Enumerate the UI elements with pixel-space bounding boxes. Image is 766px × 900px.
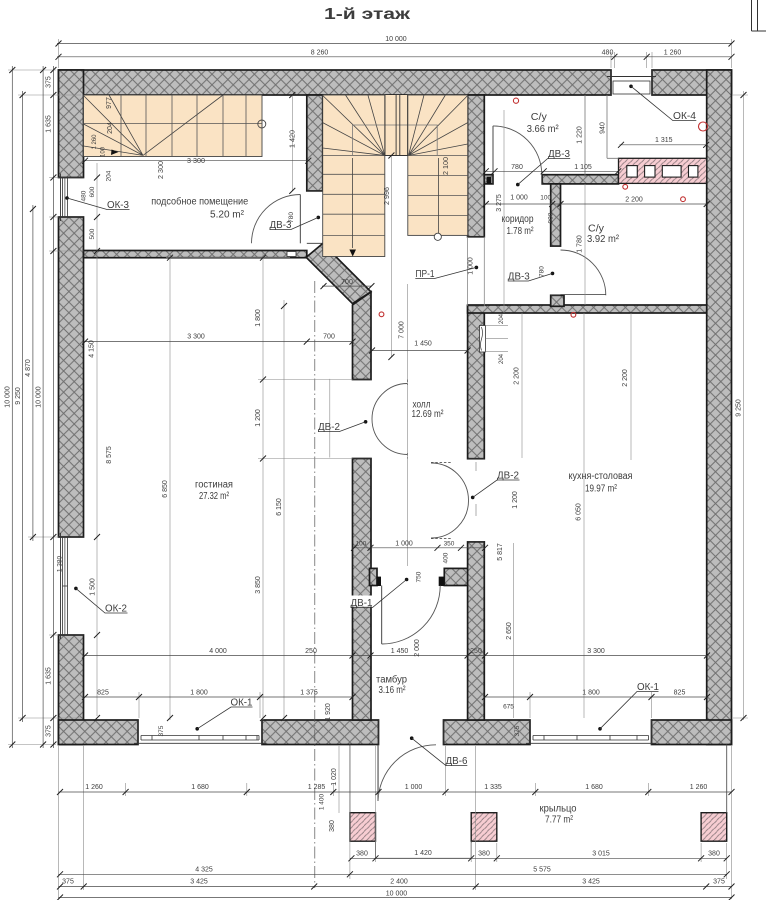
svg-text:1 635: 1 635: [46, 115, 53, 133]
svg-text:кухня-столовая: кухня-столовая: [569, 471, 633, 482]
svg-text:1 200: 1 200: [255, 409, 262, 427]
svg-text:6 050: 6 050: [576, 503, 583, 521]
svg-text:380: 380: [329, 820, 336, 832]
svg-text:100: 100: [356, 541, 367, 548]
svg-text:3 300: 3 300: [187, 156, 205, 165]
svg-text:750: 750: [416, 571, 423, 582]
svg-text:10 000: 10 000: [5, 386, 12, 408]
svg-text:ДВ-2: ДВ-2: [318, 422, 340, 433]
svg-text:ОК-3: ОК-3: [107, 200, 129, 211]
svg-text:380: 380: [708, 851, 720, 858]
svg-text:375: 375: [158, 725, 165, 736]
svg-text:1 920: 1 920: [325, 703, 332, 721]
svg-text:3.66 m²: 3.66 m²: [527, 124, 560, 135]
svg-text:7.77 m²: 7.77 m²: [545, 815, 574, 826]
svg-text:375: 375: [713, 879, 725, 886]
svg-text:ДВ-1: ДВ-1: [351, 598, 373, 609]
svg-text:10 000: 10 000: [35, 386, 42, 408]
svg-text:2 300: 2 300: [156, 161, 165, 179]
svg-text:2 996: 2 996: [382, 187, 391, 205]
svg-text:1 400: 1 400: [319, 793, 326, 810]
svg-text:ОК-4: ОК-4: [673, 111, 696, 122]
svg-text:2 650: 2 650: [506, 622, 513, 640]
svg-text:600: 600: [89, 186, 96, 197]
svg-text:2 100: 2 100: [441, 157, 450, 175]
svg-text:19.97 m²: 19.97 m²: [585, 484, 618, 495]
svg-text:6 850: 6 850: [162, 480, 169, 498]
svg-text:1 500: 1 500: [90, 578, 97, 596]
svg-text:крыльцо: крыльцо: [540, 804, 577, 815]
svg-text:380: 380: [356, 851, 368, 858]
svg-text:400: 400: [443, 552, 450, 563]
svg-text:5 817: 5 817: [497, 543, 504, 561]
svg-text:гостиная: гостиная: [195, 480, 233, 491]
svg-text:ДВ-2: ДВ-2: [497, 471, 519, 482]
svg-text:1 000: 1 000: [395, 541, 413, 548]
svg-text:ОК-2: ОК-2: [105, 604, 127, 615]
svg-text:9 250: 9 250: [736, 399, 743, 417]
svg-text:10 000: 10 000: [385, 36, 407, 43]
svg-text:780: 780: [538, 266, 545, 277]
svg-text:780: 780: [511, 164, 523, 171]
svg-text:1 635: 1 635: [46, 667, 53, 685]
svg-text:500: 500: [89, 228, 96, 239]
svg-text:825: 825: [674, 690, 686, 697]
svg-text:1 800: 1 800: [255, 309, 262, 327]
svg-text:100: 100: [540, 195, 551, 202]
svg-text:1 680: 1 680: [585, 784, 603, 791]
svg-text:1 420: 1 420: [414, 850, 432, 857]
svg-text:375: 375: [46, 725, 53, 737]
svg-text:1 260: 1 260: [664, 50, 682, 57]
svg-text:1 285: 1 285: [308, 784, 326, 791]
svg-text:1 260: 1 260: [690, 784, 708, 791]
svg-text:250: 250: [305, 648, 317, 655]
svg-text:350: 350: [444, 541, 455, 548]
svg-text:675: 675: [503, 704, 514, 711]
svg-text:1 420: 1 420: [288, 130, 297, 148]
svg-text:3 850: 3 850: [255, 576, 262, 594]
svg-text:1 020: 1 020: [331, 768, 338, 786]
svg-text:9 250: 9 250: [15, 387, 22, 405]
svg-text:1 800: 1 800: [582, 690, 600, 697]
svg-text:204: 204: [499, 353, 505, 364]
svg-text:1 000: 1 000: [510, 195, 528, 202]
svg-text:ПР-1: ПР-1: [416, 269, 435, 280]
svg-text:3 300: 3 300: [587, 648, 605, 655]
svg-text:2 200: 2 200: [625, 197, 643, 204]
svg-text:1 780: 1 780: [577, 235, 584, 253]
svg-text:480: 480: [81, 190, 88, 201]
svg-text:204: 204: [499, 313, 505, 324]
svg-text:1 105: 1 105: [574, 164, 592, 171]
svg-text:4 000: 4 000: [209, 648, 227, 655]
svg-text:1 380: 1 380: [57, 555, 64, 572]
svg-text:4 870: 4 870: [25, 359, 32, 377]
svg-text:подсобное помещение: подсобное помещение: [151, 196, 248, 208]
svg-text:900: 900: [548, 212, 555, 223]
svg-text:27.32 m²: 27.32 m²: [199, 491, 230, 502]
svg-text:7 000: 7 000: [399, 321, 406, 339]
svg-text:375: 375: [514, 725, 521, 736]
svg-text:375: 375: [62, 879, 74, 886]
svg-text:2 200: 2 200: [514, 367, 521, 385]
svg-text:380: 380: [478, 851, 490, 858]
svg-text:5 575: 5 575: [533, 867, 551, 874]
svg-text:6 150: 6 150: [276, 498, 283, 516]
svg-text:100: 100: [101, 146, 107, 157]
svg-text:977: 977: [106, 97, 113, 109]
svg-text:2 200: 2 200: [622, 369, 629, 387]
svg-text:2 400: 2 400: [390, 879, 408, 886]
svg-text:ДВ-3: ДВ-3: [508, 272, 530, 283]
svg-text:ОК-1: ОК-1: [637, 682, 659, 693]
svg-text:8 575: 8 575: [106, 446, 113, 464]
svg-text:1 800: 1 800: [190, 690, 208, 697]
svg-text:10 000: 10 000: [386, 891, 408, 898]
svg-text:1 375: 1 375: [300, 690, 318, 697]
svg-text:1 260: 1 260: [92, 134, 98, 150]
svg-text:1 260: 1 260: [85, 784, 103, 791]
svg-text:ДВ-6: ДВ-6: [446, 756, 468, 767]
svg-text:700: 700: [341, 279, 353, 286]
svg-text:4 150: 4 150: [89, 340, 96, 358]
svg-text:1 450: 1 450: [414, 341, 432, 348]
svg-text:1 000: 1 000: [405, 784, 423, 791]
svg-text:1 450: 1 450: [391, 648, 409, 655]
svg-text:тамбур: тамбур: [376, 674, 407, 686]
svg-text:250: 250: [470, 648, 482, 655]
svg-text:2 000: 2 000: [414, 639, 421, 657]
svg-text:3 425: 3 425: [582, 879, 600, 886]
svg-text:3.92 m²: 3.92 m²: [587, 234, 620, 245]
svg-text:825: 825: [97, 690, 109, 697]
svg-text:ДВ-3: ДВ-3: [270, 220, 292, 231]
svg-text:С/у: С/у: [588, 224, 604, 235]
svg-text:375: 375: [46, 76, 53, 88]
svg-text:1-й этаж: 1-й этаж: [324, 6, 411, 23]
svg-text:ДВ-3: ДВ-3: [548, 149, 570, 160]
svg-text:1 335: 1 335: [484, 784, 502, 791]
svg-text:3 425: 3 425: [190, 879, 208, 886]
svg-text:1 200: 1 200: [512, 491, 519, 509]
svg-text:8 260: 8 260: [311, 50, 329, 57]
svg-text:коридор: коридор: [502, 214, 534, 225]
svg-text:1 680: 1 680: [191, 784, 209, 791]
svg-text:12.69 m²: 12.69 m²: [412, 409, 445, 420]
svg-text:3 015: 3 015: [592, 851, 610, 858]
svg-text:204: 204: [107, 122, 114, 134]
svg-text:ОК-1: ОК-1: [231, 698, 253, 709]
svg-text:5.20 m²: 5.20 m²: [210, 210, 245, 221]
svg-text:3 300: 3 300: [187, 334, 205, 341]
svg-text:480: 480: [602, 50, 614, 57]
svg-text:1 220: 1 220: [577, 126, 584, 144]
svg-text:1 000: 1 000: [468, 257, 475, 275]
svg-text:940: 940: [599, 122, 606, 134]
svg-text:С/у: С/у: [531, 112, 547, 123]
svg-text:1.78 m²: 1.78 m²: [507, 226, 535, 237]
svg-text:3 275: 3 275: [496, 194, 503, 212]
svg-text:204: 204: [106, 170, 113, 181]
svg-text:1 315: 1 315: [655, 137, 673, 144]
svg-text:700: 700: [323, 334, 335, 341]
svg-text:3.16 m²: 3.16 m²: [379, 685, 407, 696]
svg-text:4 325: 4 325: [195, 867, 213, 874]
